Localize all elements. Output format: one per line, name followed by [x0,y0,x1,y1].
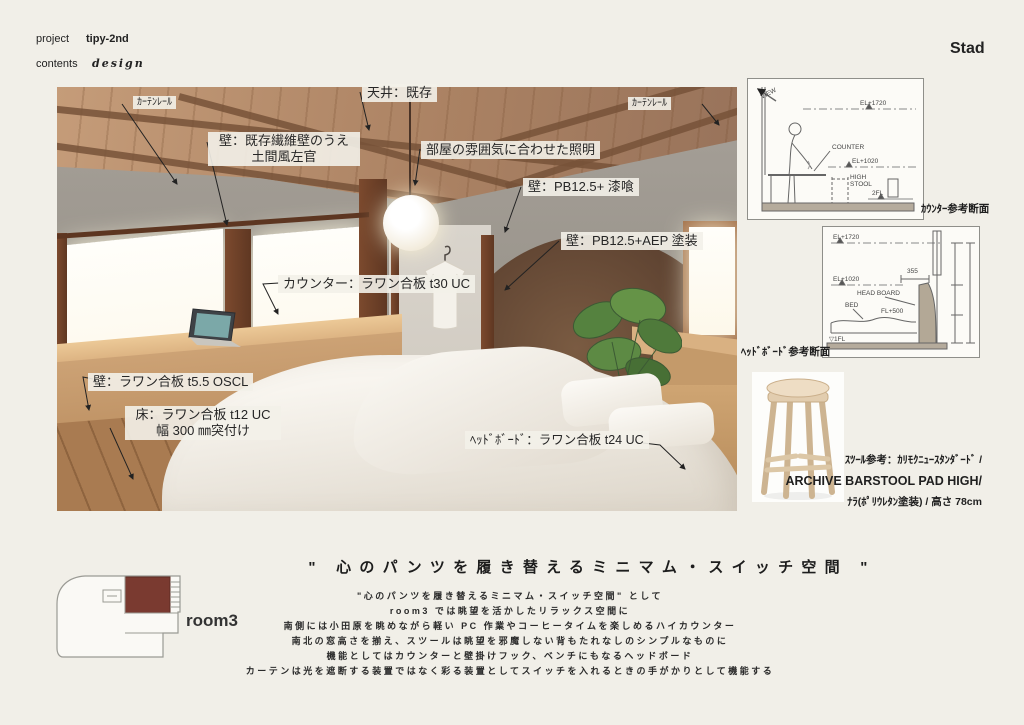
project-label: project [36,33,69,45]
brand-logo: Stad [950,40,985,58]
concept-description: "心のパンツを履き替えるミニマム・スイッチ空間" として room3 では眺望を… [170,589,850,679]
annotation-wall-fiber-line2: 土間風左官 [251,149,316,164]
annotation-curtain-rail-left: ｶｰﾃﾝﾚｰﾙ [133,96,176,109]
description-line: 機能としてはカウンターと壁掛けフック、ベンチにもなるヘッドボード [170,649,850,664]
section1-el-top: EL+1720 [860,100,887,107]
annotation-wall-fiber-line1: 壁：既存繊維壁のうえ [219,133,349,148]
section1-counter-label: COUNTER [832,144,864,151]
section1-2fl-label: 2FL [872,190,884,197]
annotation-floor-line2: 幅 300 ㎜突付け [156,423,250,438]
contents-label: contents [36,58,78,70]
contents-value: design [92,57,145,70]
annotation-lighting: 部屋の雰囲気に合わせた照明 [421,141,600,159]
counter-section-drawing: EL+1720 COUNTER EL+1020 HIGH STOOL 2FL V… [747,78,924,220]
section2-fl500-label: FL+500 [881,308,904,315]
annotation-wall-pb-aep: 壁：PB12.5+AEP 塗装 [561,232,703,250]
stool-caption-line2: ARCHIVE BARSTOOL PAD HIGH/ [770,471,982,492]
annotation-curtain-rail-right: ｶｰﾃﾝﾚｰﾙ [628,97,671,110]
section1-stool-label2: STOOL [850,181,872,188]
annotation-floor-line1: 床：ラワン合板 t12 UC [135,407,270,422]
annotation-wall-fiber: 壁：既存繊維壁のうえ 土間風左官 [208,132,360,166]
floor-plan [53,570,188,670]
description-line: 南側には小田原を眺めながら軽い PC 作業やコーヒータイムを楽しめるハイカウンタ… [170,619,850,634]
headboard-section-caption: ﾍｯﾄﾞﾎﾞｰﾄﾞ参考断面 [741,344,830,359]
counter-section-caption: ｶｳﾝﾀｰ参考断面 [921,201,989,216]
section2-el-top: EL+1720 [833,234,860,241]
description-line: "心のパンツを履き替えるミニマム・スイッチ空間" として [170,589,850,604]
section2-bed-label: BED [845,302,859,309]
section1-el-mid: EL+1020 [852,158,879,165]
concept-title: " 心のパンツを履き替えるミニマム・スイッチ空間 " [252,556,932,577]
description-line: カーテンは光を遮断する装置ではなく彩る装置としてスイッチを入れるときの手がかりと… [170,664,850,679]
project-value: tipy-2nd [86,33,129,45]
annotation-ceiling: 天井：既存 [362,84,437,102]
annotation-wall-lauan: 壁：ラワン合板 t5.5 OSCL [88,373,253,391]
section2-dim-355: 355 [907,268,918,275]
description-line: room3 では眺望を活かしたリラックス空間に [170,604,850,619]
section2-el-mid: EL+1020 [833,276,860,283]
annotation-headboard: ﾍｯﾄﾞﾎﾞｰﾄﾞ：ラワン合板 t24 UC [465,431,649,449]
annotation-wall-pb-plaster: 壁：PB12.5+ 漆喰 [523,178,639,196]
annotation-floor: 床：ラワン合板 t12 UC 幅 300 ㎜突付け [125,406,281,440]
stool-caption-line1: ｽﾂｰﾙ参考：ｶﾘﾓｸﾆｭｰｽﾀﾝﾀﾞｰﾄﾞ / [770,450,982,471]
description-line: 南北の窓高さを揃え、スツールは眺望を邪魔しない背もたれなしのシンプルなものに [170,634,850,649]
annotation-counter: カウンター：ラワン合板 t30 UC [278,275,475,293]
stool-caption: ｽﾂｰﾙ参考：ｶﾘﾓｸﾆｭｰｽﾀﾝﾀﾞｰﾄﾞ / ARCHIVE BARSTOO… [770,450,982,513]
stool-caption-line3: ﾅﾗ(ﾎﾟﾘｳﾚﾀﾝ塗装) / 高さ 78cm [770,492,982,513]
section2-headboard-label: HEAD BOARD [857,290,900,297]
section2-1fl-label: ▽1FL [829,336,846,343]
section1-stool-label: HIGH [850,174,867,181]
headboard-section-drawing: EL+1720 EL+1020 HEAD BOARD BED FL+500 35… [822,226,980,358]
